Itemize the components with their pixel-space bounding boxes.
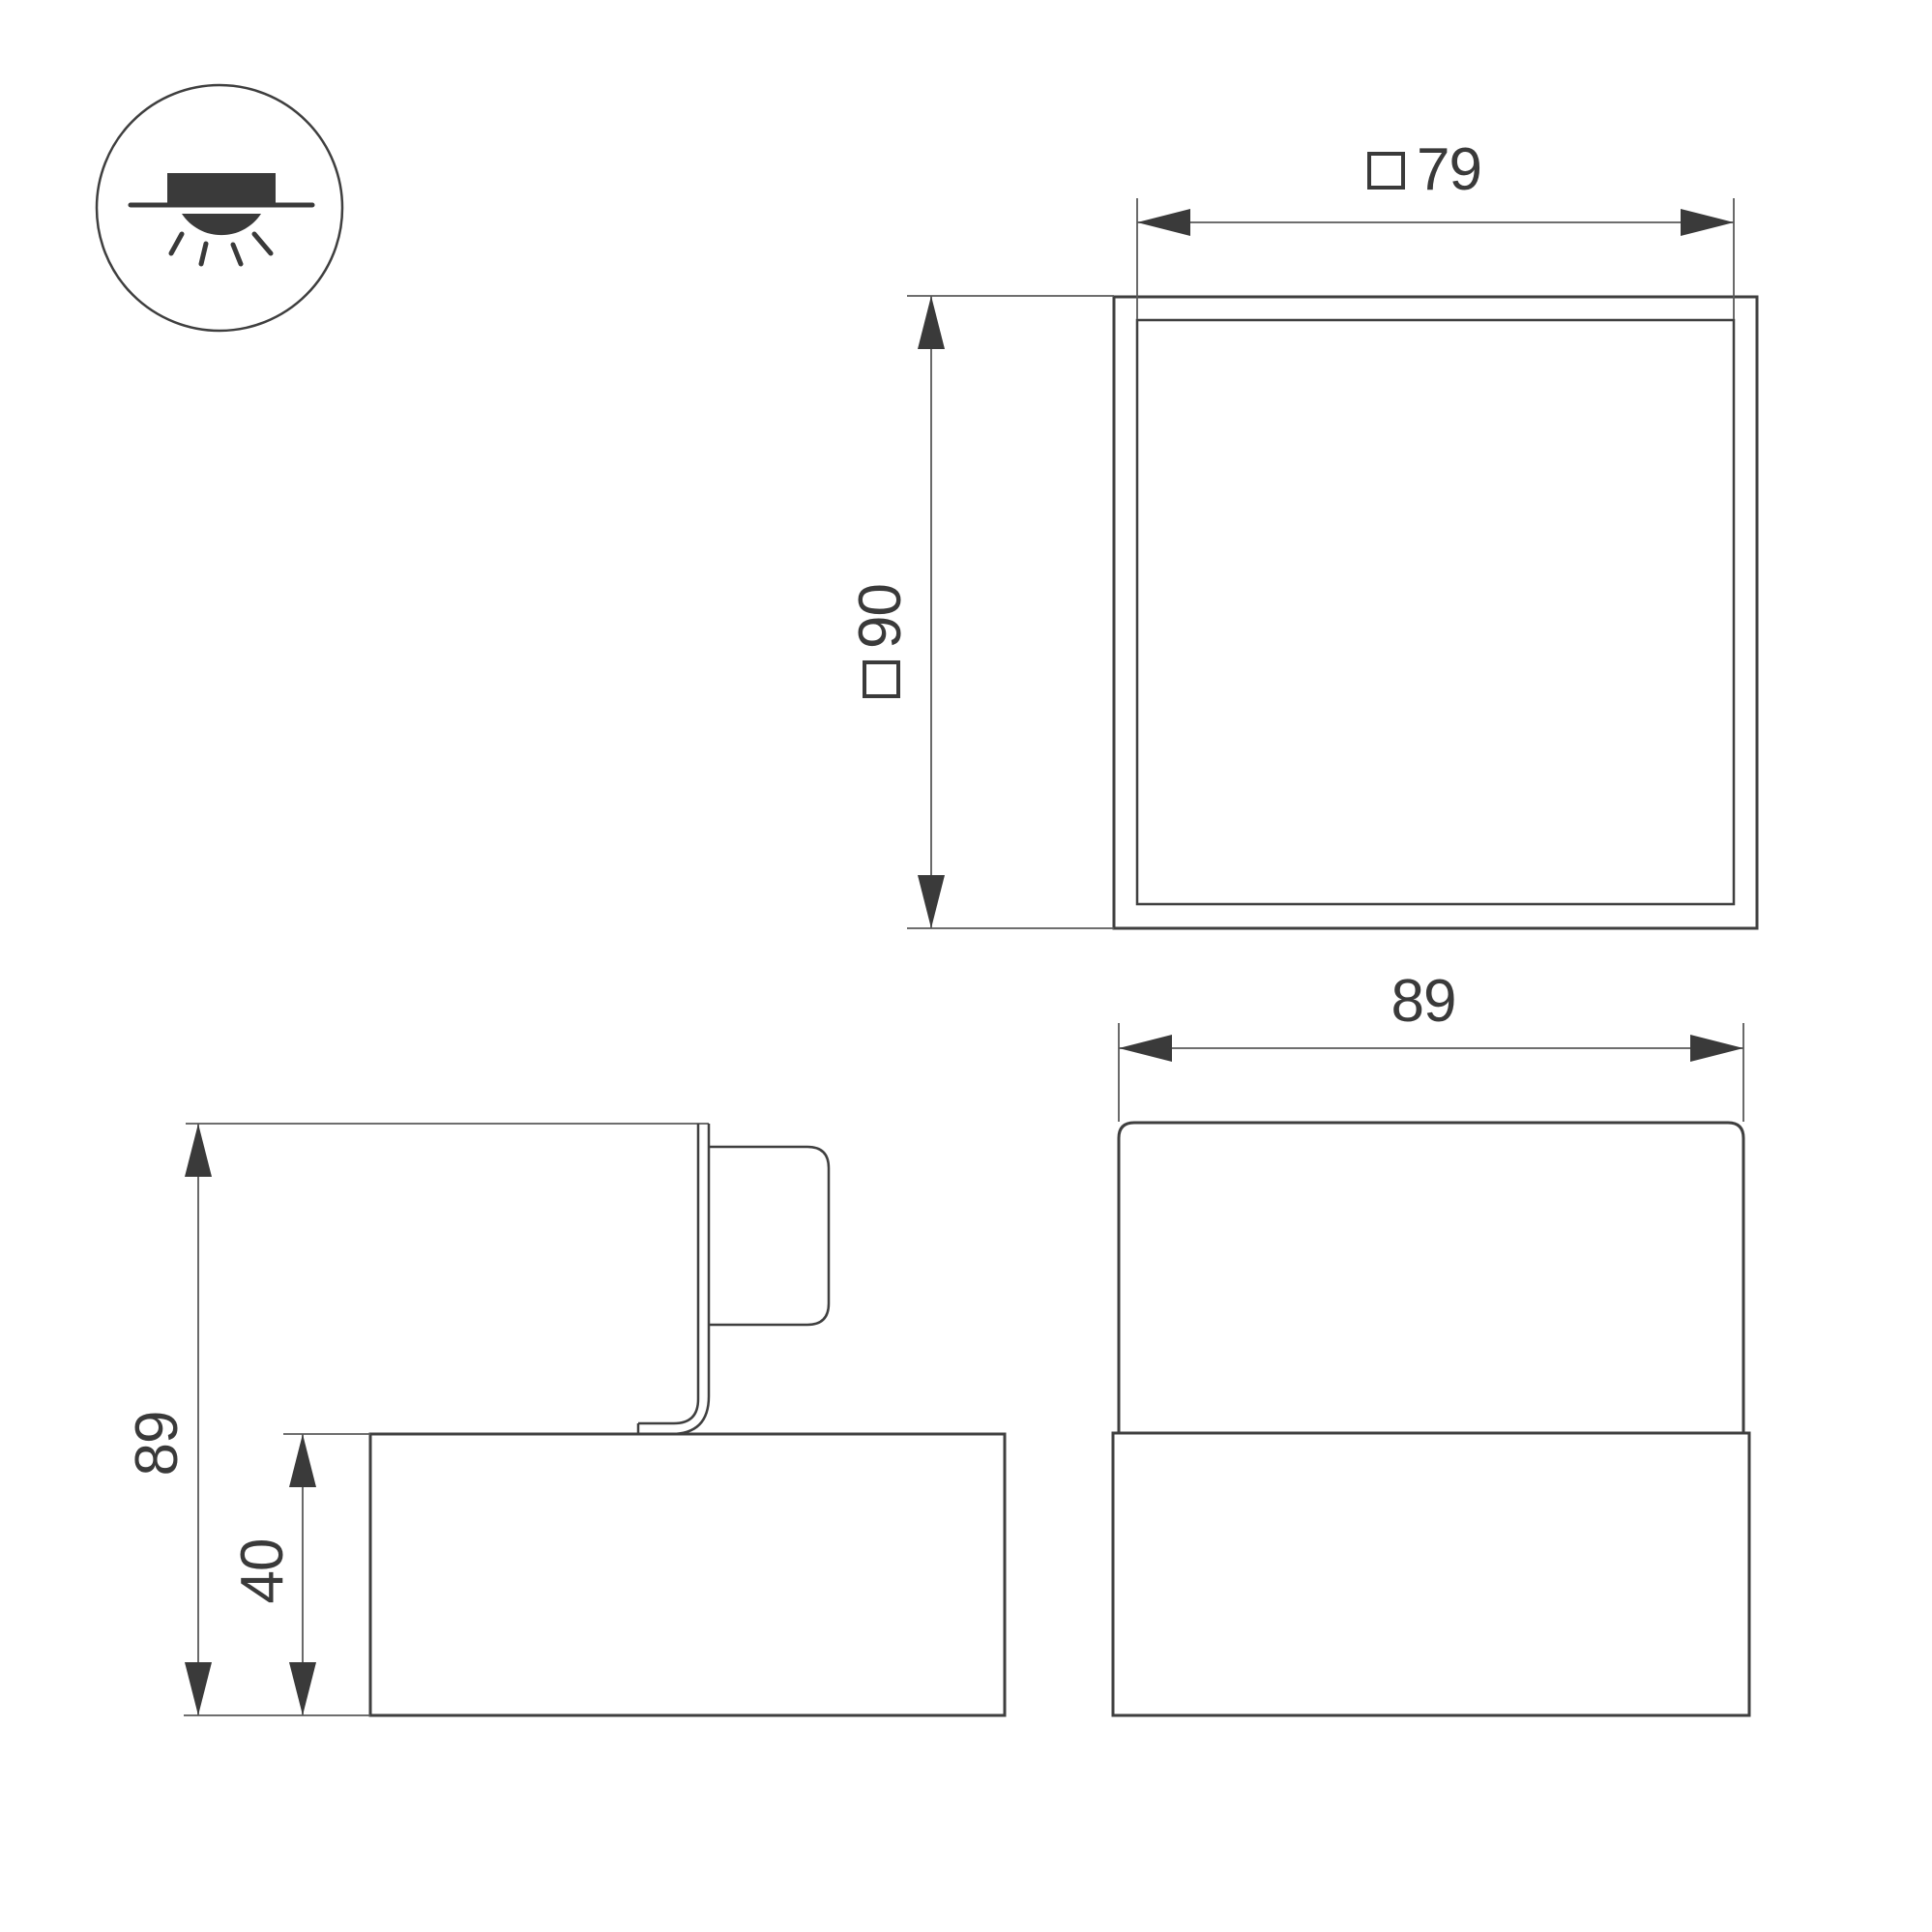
front-view-width-label: 89 <box>1391 972 1456 1032</box>
top-view-width-label: 79 <box>1367 140 1481 200</box>
square-section-symbol <box>863 660 900 698</box>
arrowhead-up <box>289 1434 316 1487</box>
top-view-height-label: 90 <box>851 584 911 698</box>
side-view <box>184 1124 1005 1715</box>
dim-value: 79 <box>1417 140 1481 200</box>
arrowhead-down <box>185 1662 212 1715</box>
top-view <box>907 198 1757 928</box>
top-view-outer-square <box>1114 297 1757 928</box>
arrowhead-left <box>1119 1035 1172 1062</box>
side-view-height-label: 89 <box>128 1412 188 1477</box>
arrowhead-up <box>918 296 945 349</box>
dim-value: 89 <box>1391 972 1456 1032</box>
arrowhead-right <box>1681 209 1734 236</box>
front-view-head-box <box>1119 1123 1743 1433</box>
dim-value: 90 <box>851 584 911 649</box>
icon-lamp-body <box>167 173 276 203</box>
bracket-inner-edge <box>638 1124 698 1423</box>
front-view <box>1113 1023 1749 1715</box>
icon-light-ray <box>233 245 241 264</box>
arrowhead-down <box>289 1662 316 1715</box>
top-view-inner-square <box>1137 320 1734 904</box>
dim-value: 89 <box>128 1412 188 1477</box>
icon-light-ray <box>254 234 271 253</box>
icon-light-ray <box>201 244 206 264</box>
side-view-base-height-label: 40 <box>233 1539 293 1604</box>
drawing-linework <box>0 0 1932 1932</box>
recessed-downlight-icon <box>97 85 342 331</box>
technical-drawing-canvas: 79 90 89 40 89 <box>0 0 1932 1932</box>
arrowhead-left <box>1137 209 1190 236</box>
arrowhead-up <box>185 1124 212 1177</box>
icon-circle <box>97 85 342 331</box>
arrowhead-down <box>918 875 945 928</box>
arrowhead-right <box>1690 1035 1743 1062</box>
icon-light-ray <box>171 234 182 253</box>
mounting-clip-box <box>709 1147 829 1325</box>
icon-light-dome <box>182 214 261 235</box>
dim-value: 40 <box>233 1539 293 1604</box>
side-view-base-box <box>370 1434 1005 1715</box>
square-section-symbol <box>1367 152 1405 190</box>
front-view-base-box <box>1113 1433 1749 1715</box>
